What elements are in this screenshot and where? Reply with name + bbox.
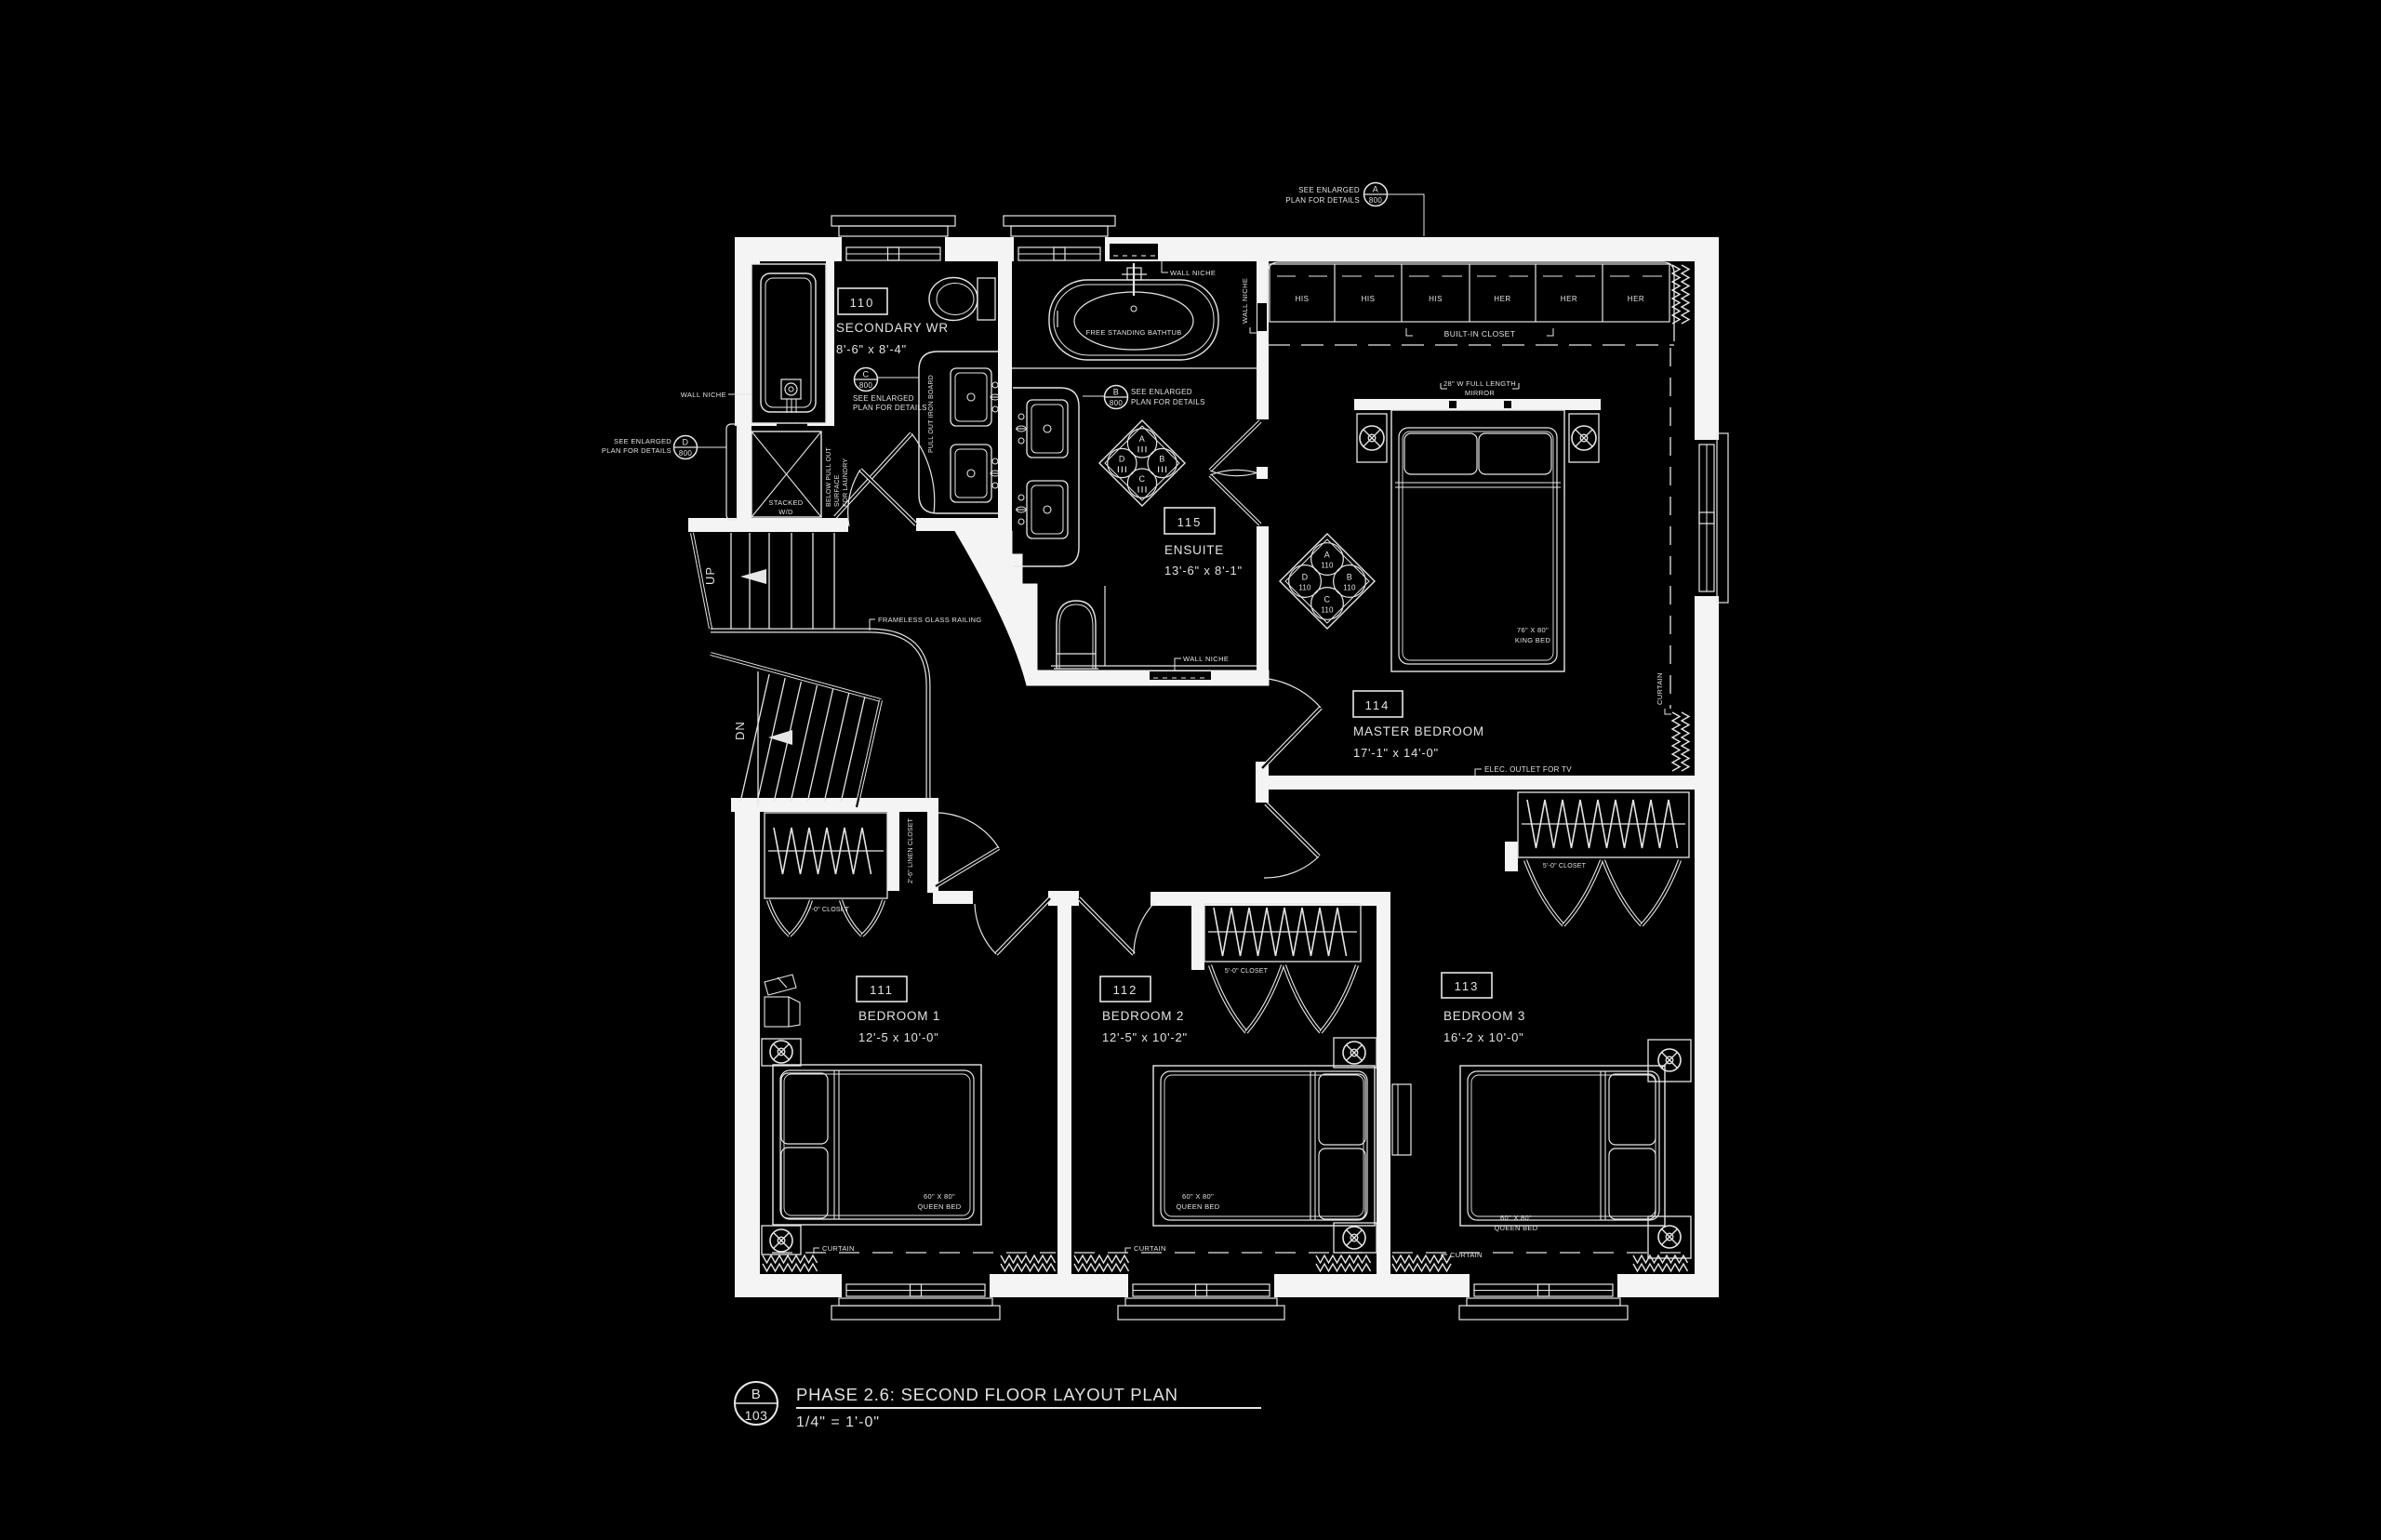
svg-text:28" W FULL LENGTH: 28" W FULL LENGTH xyxy=(1443,379,1516,388)
svg-text:SEE ENLARGED: SEE ENLARGED xyxy=(1131,388,1192,396)
svg-text:B: B xyxy=(1347,573,1352,582)
svg-text:C: C xyxy=(863,370,870,379)
svg-text:SURFACE: SURFACE xyxy=(834,474,841,507)
svg-text:QUEEN BED: QUEEN BED xyxy=(1177,1202,1220,1211)
svg-text:BUILT-IN CLOSET: BUILT-IN CLOSET xyxy=(1444,329,1516,339)
svg-text:WALL NICHE: WALL NICHE xyxy=(681,391,726,399)
svg-text:HIS: HIS xyxy=(1296,295,1310,303)
svg-text:BEDROOM 3: BEDROOM 3 xyxy=(1443,1009,1525,1023)
svg-text:WALL NICHE: WALL NICHE xyxy=(1183,655,1229,663)
svg-text:A: A xyxy=(1324,551,1330,560)
svg-text:60" X 80": 60" X 80" xyxy=(1500,1214,1532,1222)
svg-text:HER: HER xyxy=(1561,295,1577,303)
svg-text:BEDROOM 2: BEDROOM 2 xyxy=(1102,1009,1184,1023)
svg-text:800: 800 xyxy=(859,381,872,390)
svg-text:SEE ENLARGED: SEE ENLARGED xyxy=(1298,186,1360,194)
svg-text:B: B xyxy=(752,1387,762,1402)
svg-text:KING BED: KING BED xyxy=(1515,636,1551,644)
svg-text:B: B xyxy=(1159,455,1164,464)
svg-text:112: 112 xyxy=(1113,983,1138,997)
svg-text:60" X 80": 60" X 80" xyxy=(924,1192,955,1201)
svg-text:800: 800 xyxy=(1110,399,1123,407)
svg-text:110: 110 xyxy=(1343,584,1356,592)
svg-text:60" X 80": 60" X 80" xyxy=(1182,1192,1214,1201)
svg-text:C: C xyxy=(1139,474,1146,484)
svg-text:111: 111 xyxy=(870,983,894,997)
svg-text:PLAN FOR DETAILS: PLAN FOR DETAILS xyxy=(853,404,927,412)
svg-text:114: 114 xyxy=(1365,698,1390,712)
svg-text:CURTAIN: CURTAIN xyxy=(1134,1244,1166,1253)
svg-text:PULL OUT IRON BOARD: PULL OUT IRON BOARD xyxy=(928,375,935,453)
svg-text:W/D: W/D xyxy=(778,508,793,516)
svg-text:5'-0" CLOSET: 5'-0" CLOSET xyxy=(1543,863,1587,870)
svg-text:2'-6" LINEN CLOSET: 2'-6" LINEN CLOSET xyxy=(908,817,914,883)
svg-text:DN: DN xyxy=(733,721,747,740)
svg-text:113: 113 xyxy=(1455,979,1480,993)
svg-text:WALL NICHE: WALL NICHE xyxy=(1241,278,1249,324)
svg-text:D: D xyxy=(683,438,689,447)
svg-text:BELOW PULL OUT: BELOW PULL OUT xyxy=(826,446,832,507)
svg-text:16'-2 x 10'-0": 16'-2 x 10'-0" xyxy=(1443,1030,1524,1044)
svg-text:ELEC. OUTLET FOR TV: ELEC. OUTLET FOR TV xyxy=(1484,765,1572,774)
svg-text:PLAN FOR DETAILS: PLAN FOR DETAILS xyxy=(1131,398,1205,406)
svg-text:MASTER BEDROOM: MASTER BEDROOM xyxy=(1353,724,1484,738)
svg-text:5'-0" CLOSET: 5'-0" CLOSET xyxy=(1225,968,1269,975)
svg-text:SECONDARY WR: SECONDARY WR xyxy=(836,321,949,335)
svg-text:800: 800 xyxy=(1369,196,1382,205)
svg-text:800: 800 xyxy=(679,449,692,458)
svg-text:1/4" = 1'-0": 1/4" = 1'-0" xyxy=(796,1414,880,1430)
svg-text:ENSUITE: ENSUITE xyxy=(1164,543,1224,557)
svg-text:HER: HER xyxy=(1494,295,1510,303)
svg-text:103: 103 xyxy=(745,1408,768,1423)
svg-text:FRAMELESS GLASS RAILING: FRAMELESS GLASS RAILING xyxy=(878,616,982,624)
svg-text:CURTAIN: CURTAIN xyxy=(822,1244,855,1253)
svg-text:110: 110 xyxy=(1321,605,1334,614)
svg-text:HIS: HIS xyxy=(1429,295,1443,303)
svg-text:SEE ENLARGED: SEE ENLARGED xyxy=(614,437,672,445)
svg-text:17'-1" x 14'-0": 17'-1" x 14'-0" xyxy=(1353,746,1439,760)
svg-text:PHASE 2.6: SECOND FLOOR LAYOUT: PHASE 2.6: SECOND FLOOR LAYOUT PLAN xyxy=(796,1385,1178,1404)
svg-text:HER: HER xyxy=(1628,295,1644,303)
svg-text:76" X 80": 76" X 80" xyxy=(1517,626,1549,634)
svg-text:110: 110 xyxy=(1298,584,1311,592)
svg-text:CURTAIN: CURTAIN xyxy=(1450,1251,1483,1259)
svg-text:110: 110 xyxy=(1321,562,1334,570)
svg-text:12'-5" x 10'-2": 12'-5" x 10'-2" xyxy=(1102,1030,1188,1044)
svg-text:SEE ENLARGED: SEE ENLARGED xyxy=(853,394,914,403)
svg-text:FREE STANDING BATHTUB: FREE STANDING BATHTUB xyxy=(1085,328,1181,337)
svg-text:UP: UP xyxy=(703,566,717,585)
svg-text:STACKED: STACKED xyxy=(769,498,804,507)
svg-text:D: D xyxy=(1302,573,1309,582)
svg-text:PLAN FOR DETAILS: PLAN FOR DETAILS xyxy=(1285,196,1360,205)
svg-text:BEDROOM 1: BEDROOM 1 xyxy=(858,1009,940,1023)
svg-text:C: C xyxy=(1324,594,1331,604)
svg-text:HIS: HIS xyxy=(1362,295,1376,303)
svg-text:A: A xyxy=(1139,434,1145,444)
svg-text:8'-6" x 8'-4": 8'-6" x 8'-4" xyxy=(836,342,907,356)
svg-text:115: 115 xyxy=(1177,515,1203,529)
svg-text:CURTAIN: CURTAIN xyxy=(1656,672,1664,705)
svg-text:B: B xyxy=(1113,388,1120,397)
svg-text:A: A xyxy=(1373,185,1379,194)
svg-text:QUEEN BED: QUEEN BED xyxy=(1495,1224,1538,1232)
svg-text:110: 110 xyxy=(850,296,875,310)
svg-text:QUEEN BED: QUEEN BED xyxy=(918,1202,962,1211)
svg-text:D: D xyxy=(1119,455,1125,464)
svg-text:PLAN FOR DETAILS: PLAN FOR DETAILS xyxy=(602,446,672,455)
svg-text:12'-5 x 10'-0": 12'-5 x 10'-0" xyxy=(858,1030,939,1044)
svg-text:MIRROR: MIRROR xyxy=(1465,389,1495,397)
svg-text:WALL NICHE: WALL NICHE xyxy=(1170,269,1216,277)
svg-text:13'-6" x 8'-1": 13'-6" x 8'-1" xyxy=(1164,564,1243,577)
